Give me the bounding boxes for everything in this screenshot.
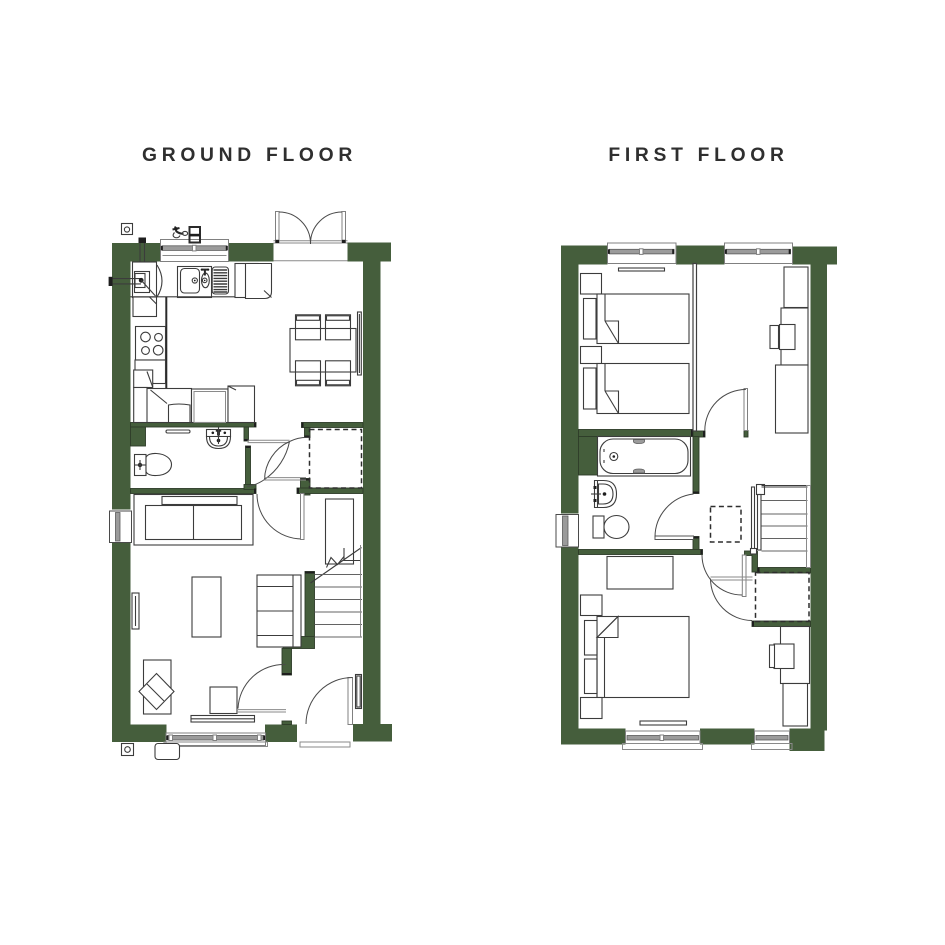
- svg-text:GROUND FLOOR: GROUND FLOOR: [142, 145, 357, 166]
- svg-text:FIRST FLOOR: FIRST FLOOR: [608, 145, 788, 166]
